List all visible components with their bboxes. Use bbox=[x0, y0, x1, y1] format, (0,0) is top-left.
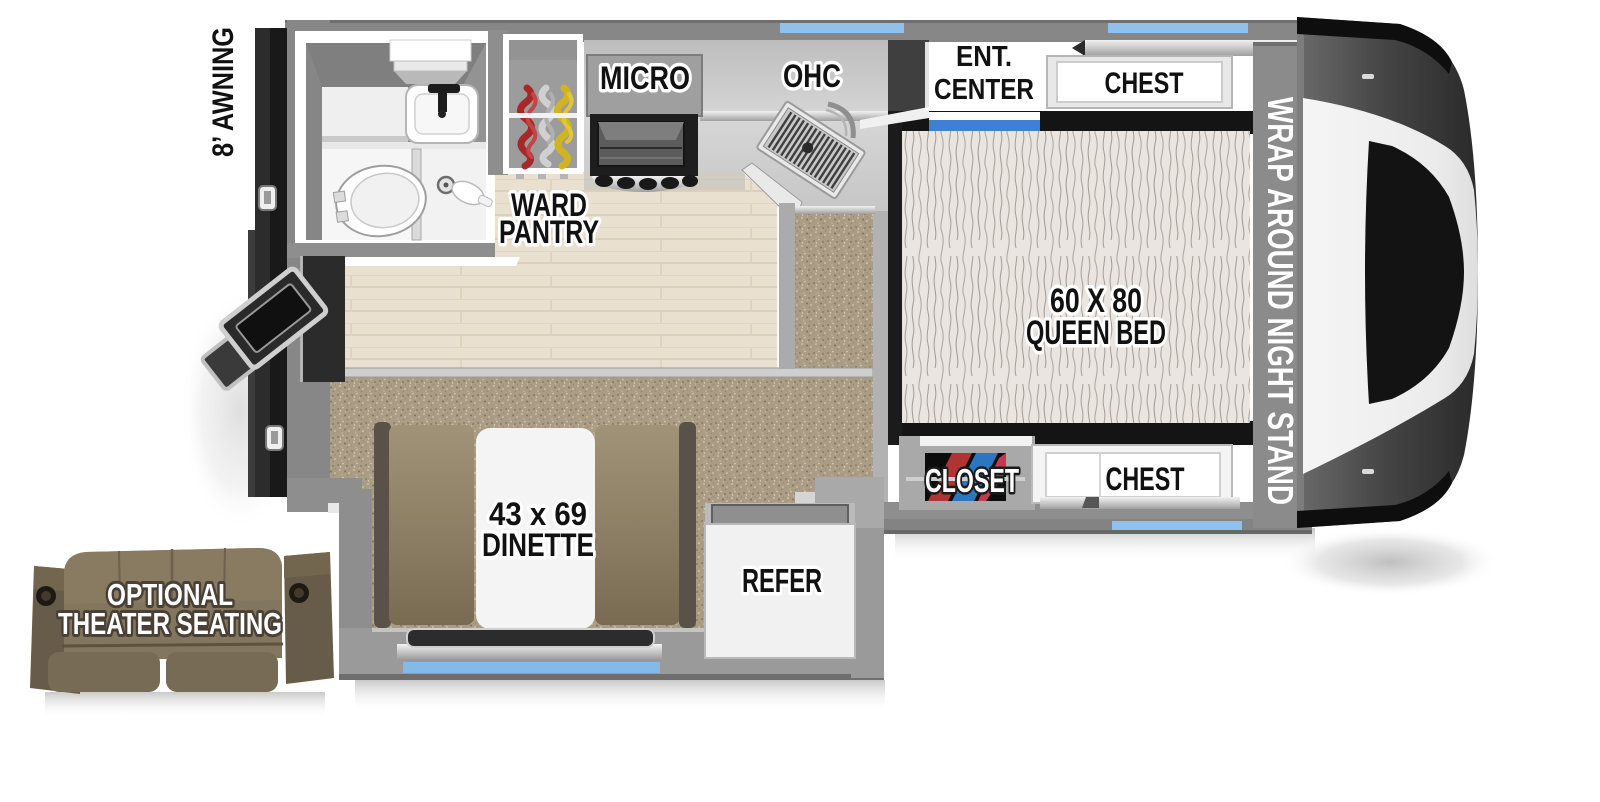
svg-text:ENT.: ENT. bbox=[956, 41, 1012, 73]
svg-text:OHC: OHC bbox=[783, 58, 841, 94]
svg-text:CLOSET: CLOSET bbox=[925, 462, 1019, 499]
svg-text:CHEST: CHEST bbox=[1106, 461, 1185, 497]
svg-text:MICRO: MICRO bbox=[600, 60, 690, 96]
svg-text:CHEST: CHEST bbox=[1105, 67, 1184, 100]
svg-text:8’ AWNING: 8’ AWNING bbox=[207, 27, 240, 157]
svg-text:QUEEN BED: QUEEN BED bbox=[1026, 314, 1166, 352]
svg-text:THEATER SEATING: THEATER SEATING bbox=[58, 606, 282, 641]
svg-text:WRAP AROUND NIGHT STAND: WRAP AROUND NIGHT STAND bbox=[1260, 97, 1301, 505]
svg-text:PANTRY: PANTRY bbox=[499, 214, 599, 250]
svg-text:DINETTE: DINETTE bbox=[482, 527, 594, 563]
svg-text:CENTER: CENTER bbox=[934, 74, 1034, 106]
svg-text:REFER: REFER bbox=[742, 562, 822, 599]
